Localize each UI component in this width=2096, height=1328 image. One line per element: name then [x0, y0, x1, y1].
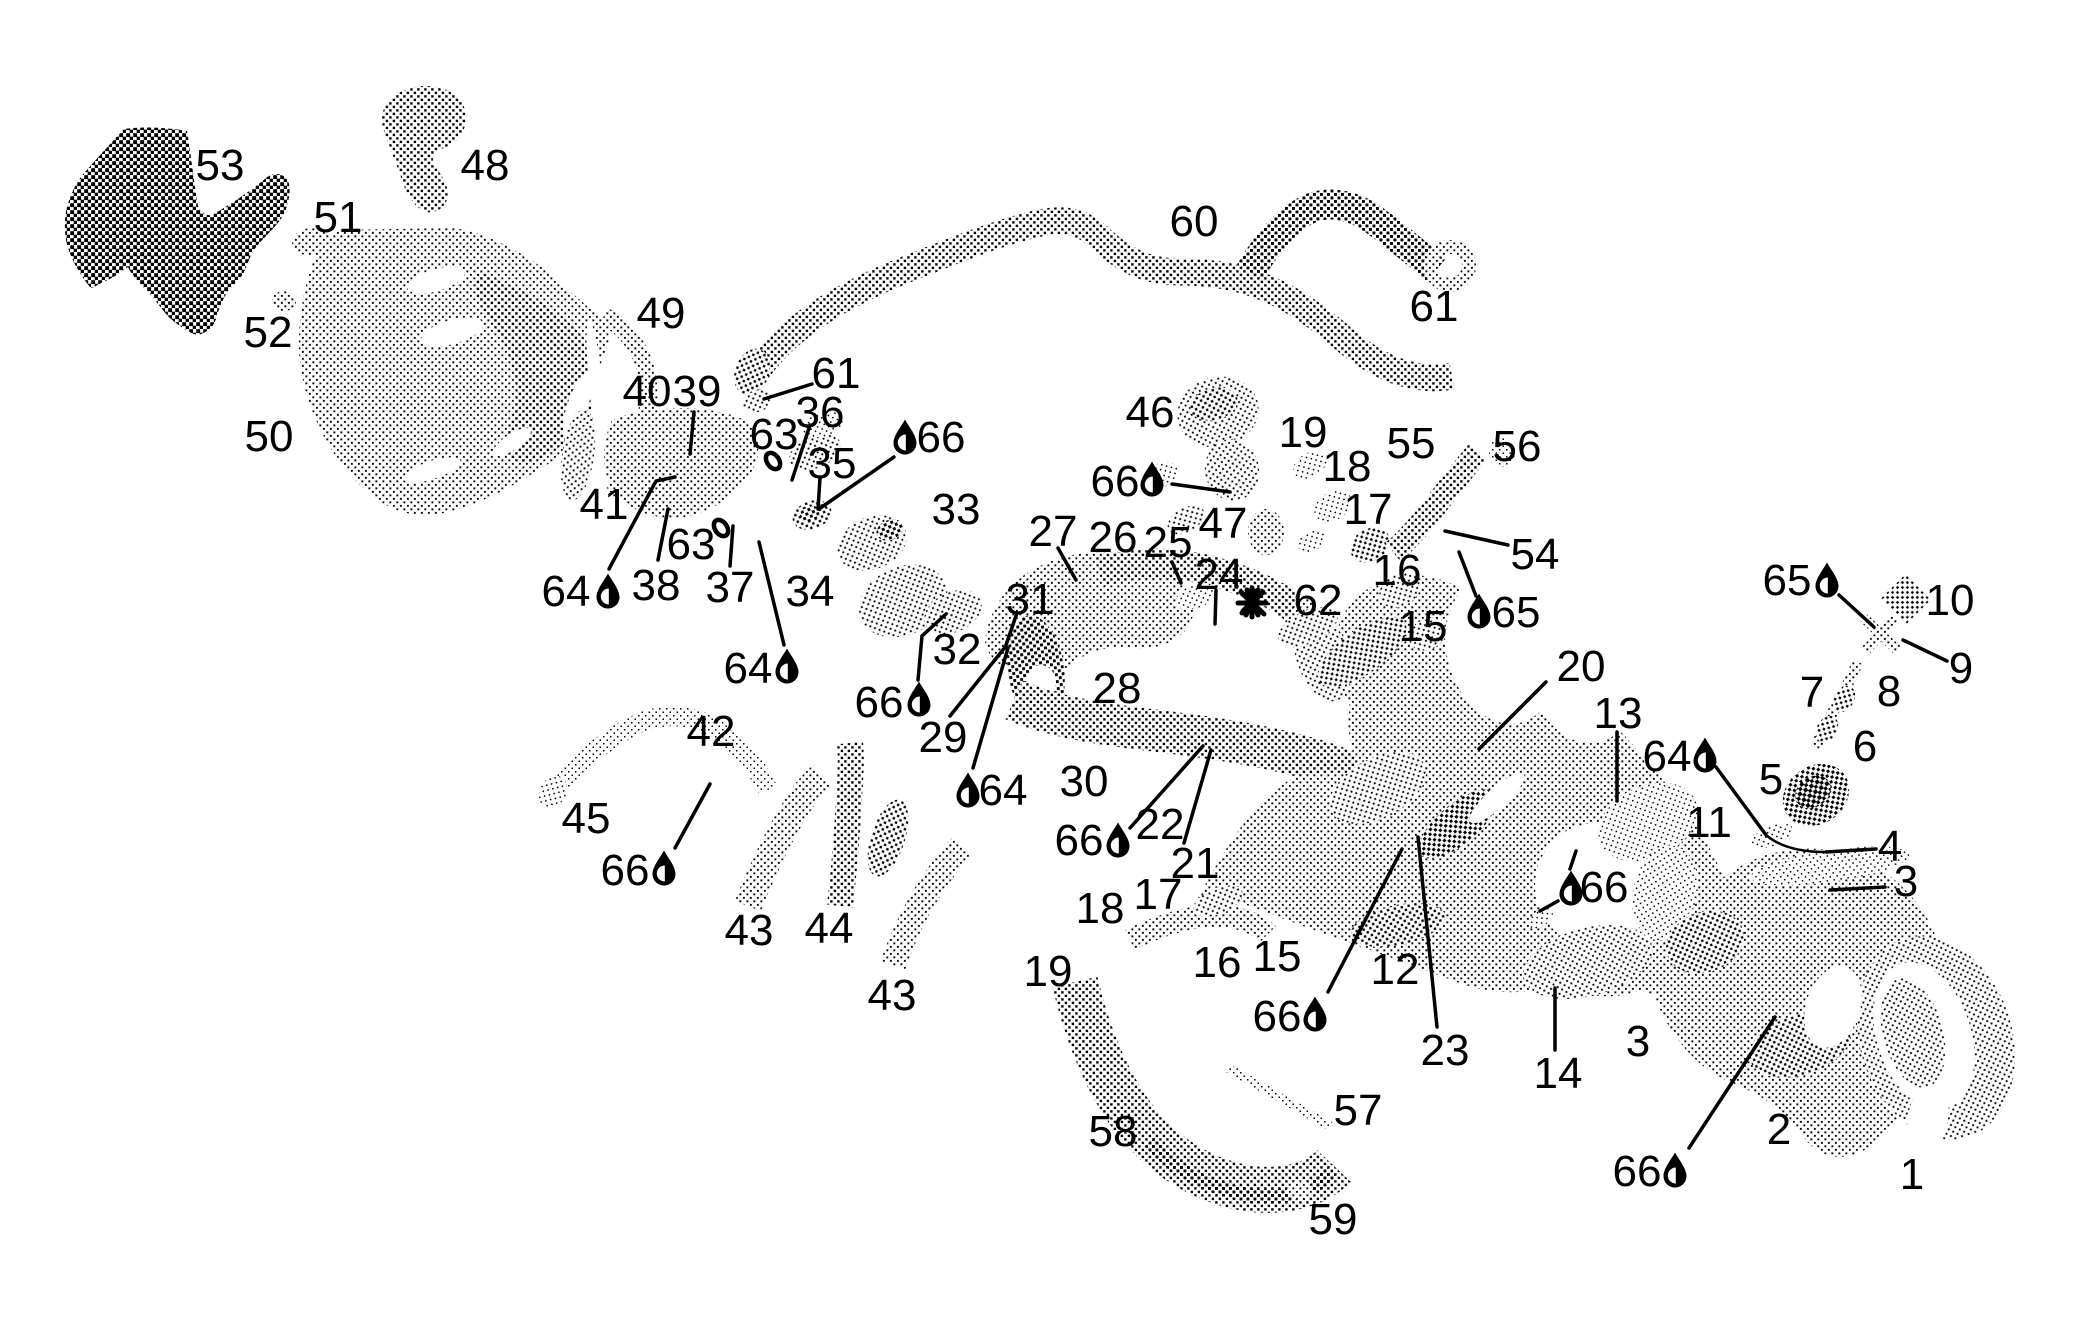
svg-text:66: 66 [1613, 1147, 1662, 1196]
svg-text:14: 14 [1534, 1049, 1583, 1098]
svg-text:37: 37 [706, 563, 755, 612]
svg-text:5: 5 [1759, 755, 1783, 804]
svg-text:32: 32 [933, 625, 982, 674]
svg-text:33: 33 [932, 485, 981, 534]
svg-text:66: 66 [1580, 863, 1629, 912]
svg-text:52: 52 [244, 308, 293, 357]
svg-text:66: 66 [917, 413, 966, 462]
svg-text:4: 4 [1878, 822, 1902, 871]
svg-text:60: 60 [1170, 197, 1219, 246]
svg-text:18: 18 [1323, 442, 1372, 491]
svg-text:48: 48 [461, 141, 510, 190]
svg-text:23: 23 [1421, 1026, 1470, 1075]
svg-text:29: 29 [919, 713, 968, 762]
svg-text:46: 46 [1126, 388, 1175, 437]
svg-text:28: 28 [1093, 664, 1142, 713]
svg-text:55: 55 [1387, 419, 1436, 468]
svg-text:44: 44 [805, 904, 854, 953]
svg-text:66: 66 [1253, 992, 1302, 1041]
svg-text:57: 57 [1334, 1086, 1383, 1135]
svg-text:54: 54 [1511, 530, 1560, 579]
svg-text:15: 15 [1399, 602, 1448, 651]
svg-text:34: 34 [786, 567, 835, 616]
svg-text:9: 9 [1949, 644, 1973, 693]
svg-text:2: 2 [1767, 1105, 1791, 1154]
svg-text:24: 24 [1195, 550, 1244, 599]
svg-text:50: 50 [245, 412, 294, 461]
svg-text:64: 64 [979, 766, 1028, 815]
svg-text:42: 42 [687, 707, 736, 756]
svg-text:53: 53 [196, 141, 245, 190]
svg-text:16: 16 [1193, 938, 1242, 987]
svg-text:64: 64 [542, 567, 591, 616]
svg-text:26: 26 [1089, 513, 1138, 562]
svg-text:6: 6 [1853, 722, 1877, 771]
svg-text:61: 61 [812, 349, 861, 398]
svg-text:43: 43 [868, 971, 917, 1020]
svg-text:51: 51 [314, 193, 363, 242]
svg-text:8: 8 [1877, 667, 1901, 716]
svg-text:59: 59 [1309, 1195, 1358, 1244]
svg-text:66: 66 [855, 678, 904, 727]
svg-text:39: 39 [673, 367, 722, 416]
svg-text:10: 10 [1926, 576, 1975, 625]
svg-text:64: 64 [1643, 732, 1692, 781]
svg-text:16: 16 [1373, 546, 1422, 595]
svg-text:25: 25 [1144, 518, 1193, 567]
svg-text:31: 31 [1006, 575, 1055, 624]
svg-text:65: 65 [1492, 588, 1541, 637]
svg-text:63: 63 [667, 520, 716, 569]
svg-text:47: 47 [1199, 499, 1248, 548]
svg-text:66: 66 [1091, 457, 1140, 506]
svg-text:15: 15 [1253, 932, 1302, 981]
svg-text:43: 43 [725, 906, 774, 955]
svg-text:64: 64 [724, 644, 773, 693]
svg-text:65: 65 [1763, 556, 1812, 605]
svg-text:1: 1 [1900, 1150, 1924, 1199]
svg-text:3: 3 [1626, 1017, 1650, 1066]
svg-text:12: 12 [1371, 945, 1420, 994]
svg-text:66: 66 [601, 846, 650, 895]
svg-text:66: 66 [1055, 816, 1104, 865]
svg-text:11: 11 [1686, 798, 1732, 847]
svg-text:19: 19 [1279, 408, 1328, 457]
svg-text:18: 18 [1076, 884, 1125, 933]
svg-text:19: 19 [1024, 947, 1073, 996]
svg-text:13: 13 [1594, 689, 1643, 738]
svg-text:62: 62 [1294, 576, 1343, 625]
svg-text:41: 41 [580, 480, 629, 529]
svg-text:22: 22 [1136, 800, 1185, 849]
svg-text:61: 61 [1410, 282, 1459, 331]
svg-text:49: 49 [637, 289, 686, 338]
svg-text:58: 58 [1089, 1107, 1138, 1156]
svg-text:56: 56 [1493, 422, 1542, 471]
svg-text:30: 30 [1060, 757, 1109, 806]
svg-text:35: 35 [808, 439, 857, 488]
svg-text:17: 17 [1344, 485, 1393, 534]
svg-text:45: 45 [562, 794, 611, 843]
svg-text:7: 7 [1800, 668, 1824, 717]
svg-text:40: 40 [623, 367, 672, 416]
svg-text:27: 27 [1029, 507, 1078, 556]
svg-text:20: 20 [1557, 642, 1606, 691]
